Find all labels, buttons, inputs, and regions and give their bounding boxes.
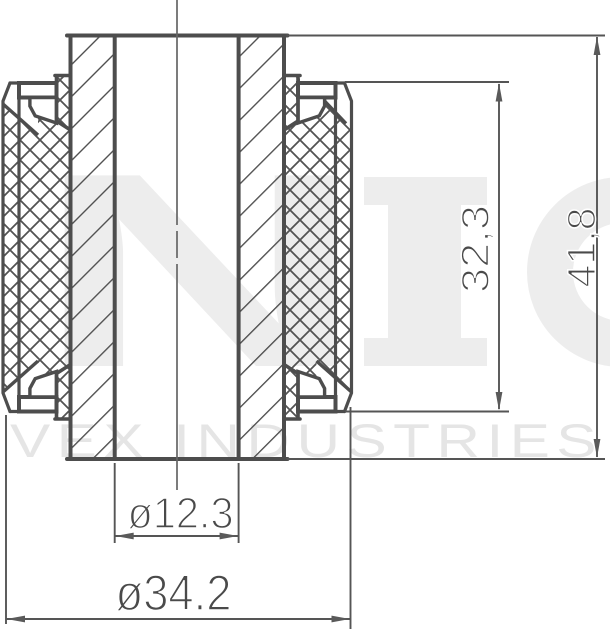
svg-text:32,3: 32,3 [455,205,498,293]
svg-text:ø34.2: ø34.2 [116,565,232,621]
svg-text:41,8: 41,8 [560,208,604,288]
svg-text:ø12.3: ø12.3 [128,489,234,538]
